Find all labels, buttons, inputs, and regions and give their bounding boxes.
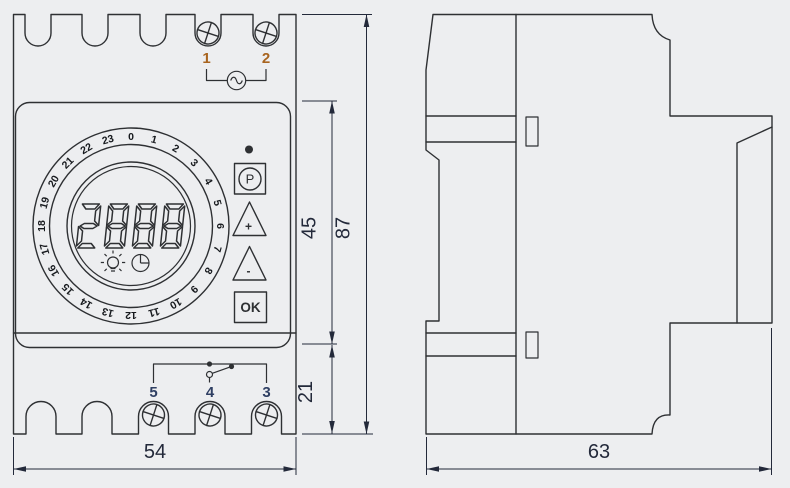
display-digit (132, 204, 157, 248)
din-rail-recess (737, 127, 772, 323)
led-dot (245, 146, 253, 154)
dial-hour-label: 18 (36, 220, 48, 232)
dial-hour-label: 11 (147, 305, 161, 320)
dim-panel-height: 45 (299, 217, 321, 239)
dial-hour-label: 23 (101, 133, 116, 148)
dim-front-width: 54 (144, 441, 166, 463)
side-body-outline (426, 15, 772, 435)
clock-icon (132, 255, 149, 272)
dial-hour-label: 13 (101, 305, 116, 320)
display-digit (76, 204, 101, 248)
display-digit (104, 204, 129, 248)
display-digit (160, 204, 185, 248)
side-clip-lower (526, 332, 538, 358)
screw-terminal-2-icon (252, 19, 280, 47)
side-clip-upper (526, 117, 538, 146)
dial-hour-label: 3 (188, 157, 201, 170)
dial-hour-label: 9 (188, 283, 201, 296)
terminal-label-1: 1 (202, 50, 210, 67)
dimension-45: 45 (299, 101, 338, 344)
terminal-label-3: 3 (262, 384, 270, 401)
dial-hour-label: 8 (201, 265, 214, 276)
minus-button: - (233, 247, 266, 281)
dial-hour-label: 12 (125, 309, 137, 321)
hour-dial: 01234567891011121314151617181920212223 (33, 128, 229, 324)
dimension-63: 63 (427, 328, 772, 475)
side-view (426, 15, 772, 435)
terminal-label-2: 2 (262, 50, 270, 67)
dim-side-depth: 63 (588, 441, 610, 463)
bulb-icon (101, 251, 125, 272)
screw-terminal-1-icon (194, 19, 222, 47)
dial-hour-label: 17 (38, 242, 53, 257)
program-button: P (235, 164, 266, 195)
dial-hour-label: 7 (210, 245, 223, 254)
dial-hour-label: 5 (210, 199, 223, 208)
dial-hour-label: 1 (150, 133, 159, 146)
plus-button-label: + (245, 220, 252, 234)
program-button-label: P (246, 172, 255, 187)
dial-hour-numbers: 01234567891011121314151617181920212223 (36, 131, 226, 321)
front-view: 1 2 012345678910111213141516171819202122… (14, 15, 297, 435)
dim-total-height: 87 (333, 217, 355, 239)
ok-button: OK (235, 292, 267, 323)
dimension-21: 21 (295, 345, 335, 434)
technical-drawing-canvas: 1 2 012345678910111213141516171819202122… (0, 0, 790, 488)
dial-hour-label: 0 (128, 131, 134, 143)
seven-segment-display (76, 204, 185, 248)
dial-hour-label: 2 (170, 142, 181, 155)
ok-button-label: OK (240, 300, 261, 315)
plus-button: + (233, 202, 266, 236)
dial-hour-label: 19 (38, 196, 53, 211)
dim-terminal-height: 21 (295, 381, 317, 403)
terminal-label-4: 4 (206, 384, 215, 401)
dial-hour-label: 6 (214, 223, 226, 229)
ac-source-icon (207, 69, 267, 90)
dimension-54: 54 (14, 437, 297, 475)
side-upper-band (426, 116, 516, 142)
changeover-contact-icon (154, 361, 267, 383)
minus-button-label: - (247, 264, 251, 278)
dial-hour-label: 4 (201, 176, 214, 187)
terminal-label-5: 5 (149, 384, 157, 401)
side-lower-band (426, 333, 516, 356)
timer-dimension-drawing: 1 2 012345678910111213141516171819202122… (0, 0, 790, 488)
